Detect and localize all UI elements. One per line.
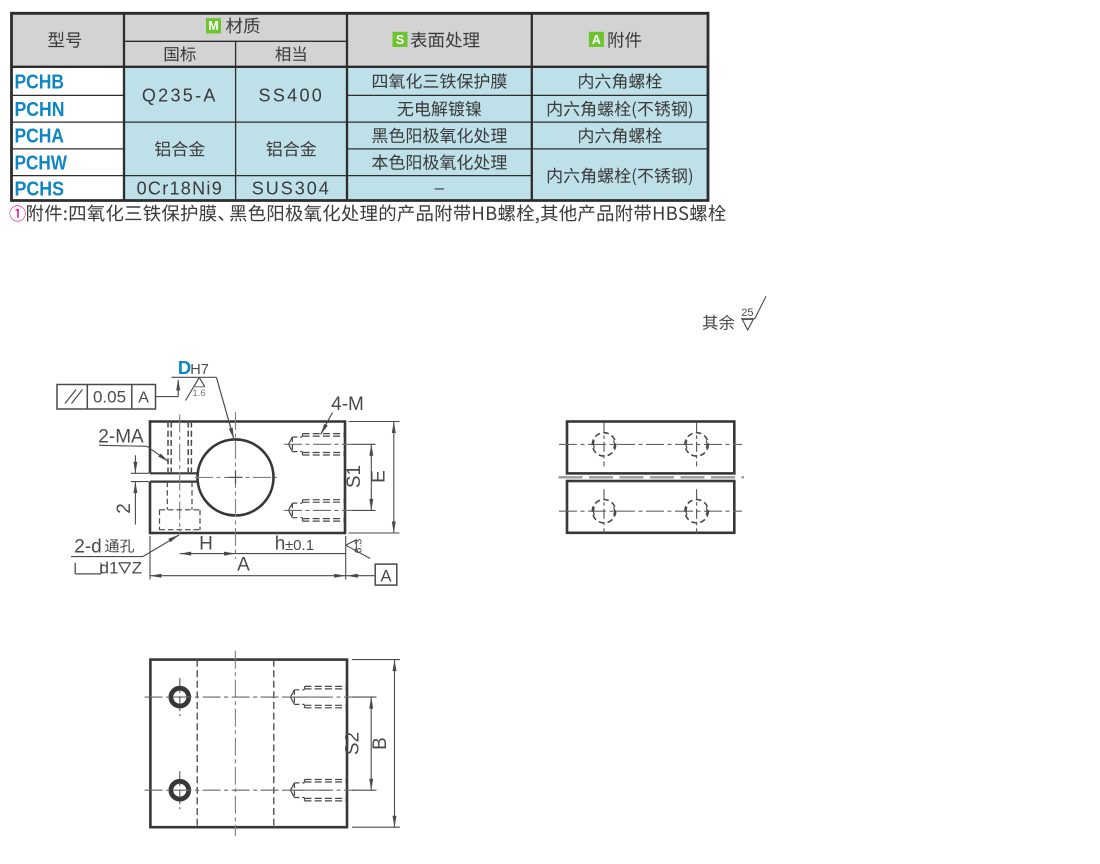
svg-text:0.05: 0.05 [93,388,126,407]
svg-text:d1: d1 [100,559,119,578]
svg-text:PCHB: PCHB [15,71,65,93]
svg-text:D: D [178,357,191,378]
svg-text:A: A [138,390,149,407]
svg-text:A: A [380,568,391,586]
svg-text:Q235-A: Q235-A [142,86,218,106]
svg-text:B: B [370,737,391,750]
svg-text:1.6: 1.6 [192,388,205,399]
svg-text:2: 2 [114,503,135,514]
svg-text:0Cr18Ni9: 0Cr18Ni9 [137,178,223,198]
svg-text:PCHA: PCHA [15,126,65,148]
svg-text:H7: H7 [190,362,209,378]
svg-text:PCHW: PCHW [15,152,68,174]
svg-text:M: M [208,19,218,33]
svg-text:h: h [275,533,286,554]
svg-text:S: S [396,33,404,47]
svg-text:A: A [592,33,601,47]
svg-text:Z: Z [132,559,142,578]
svg-text:6.3: 6.3 [353,539,365,554]
svg-text:2-d: 2-d [74,537,101,558]
svg-text:–: – [435,178,445,197]
svg-text:S2: S2 [343,732,364,755]
svg-text:±0.1: ±0.1 [285,537,314,554]
svg-text:25: 25 [741,307,753,319]
svg-text:4-M: 4-M [331,394,364,415]
svg-text:S1: S1 [344,465,365,488]
svg-text:PCHS: PCHS [15,178,65,200]
svg-text:A: A [237,555,250,576]
svg-text:SS400: SS400 [259,86,325,106]
svg-text:PCHN: PCHN [15,99,65,121]
svg-text:2-MA: 2-MA [98,427,144,448]
svg-text:H: H [199,533,213,554]
svg-text:SUS304: SUS304 [252,178,331,198]
